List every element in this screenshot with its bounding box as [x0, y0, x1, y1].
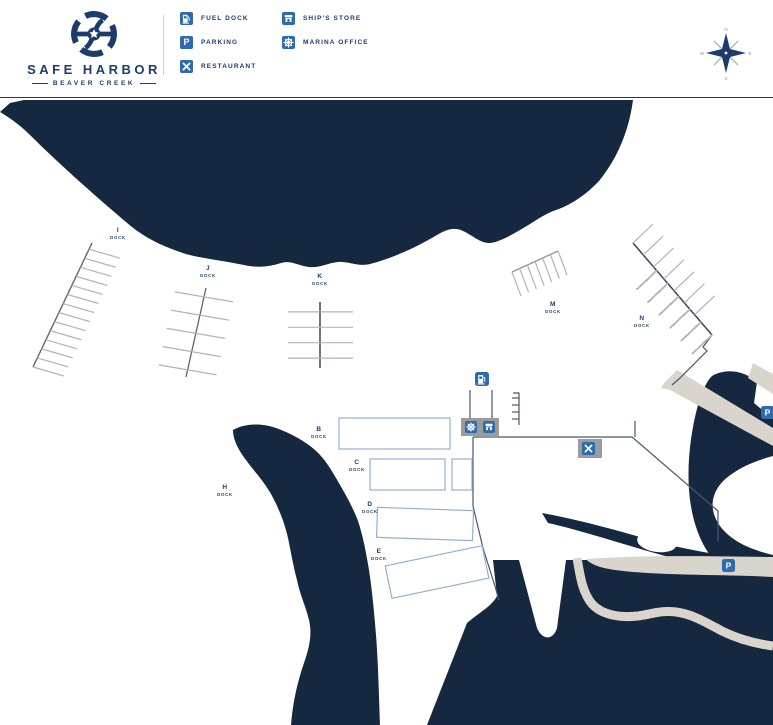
legend-item-ships-store: SHIP'S STORE: [282, 12, 369, 25]
parking-map-icon-south: P: [722, 559, 735, 572]
dock-m-sublabel: DOCK: [545, 309, 561, 314]
dock-d-structure: [377, 507, 474, 540]
marina-map-page: SAFE HARBOR BEAVER CREEK FUEL DOCK P PAR…: [0, 0, 773, 725]
dock-d-sublabel: DOCK: [362, 509, 378, 514]
dock-e-sublabel: DOCK: [371, 556, 387, 561]
legend-item-parking: P PARKING: [180, 36, 256, 49]
legend-item-fuel-dock: FUEL DOCK: [180, 12, 256, 25]
legend-label-marina-office: MARINA OFFICE: [303, 39, 369, 46]
dock-k-sublabel: DOCK: [312, 281, 328, 286]
dock-k-label: K: [317, 273, 322, 280]
parking-icon: P: [180, 36, 193, 49]
dock-n-sublabel: DOCK: [634, 323, 650, 328]
marina-map: P P B DOCK C DOCK D DOCK E DOCK H DOCK I…: [0, 97, 773, 725]
legend-label-restaurant: RESTAURANT: [201, 63, 256, 70]
fuel-dock-icon: [180, 12, 193, 25]
header-divider: [163, 15, 164, 75]
dock-h-label: H: [222, 484, 227, 491]
compass-rose-icon: N E S W: [693, 20, 759, 86]
compass-s: S: [724, 76, 727, 81]
dock-i-structure: [33, 243, 120, 376]
dock-b-sublabel: DOCK: [311, 434, 327, 439]
parking-letter: P: [183, 36, 189, 49]
legend-label-fuel-dock: FUEL DOCK: [201, 15, 249, 22]
dock-i-label: I: [117, 227, 119, 234]
compass-n: N: [724, 27, 727, 32]
legend-item-restaurant: RESTAURANT: [180, 60, 256, 73]
dock-n-label: N: [639, 315, 644, 322]
marina-office-icon: [282, 36, 295, 49]
ships-wheel-logo-icon: [68, 8, 120, 60]
dock-c-structure: [370, 459, 472, 490]
dock-m-label: M: [550, 301, 556, 308]
dock-m-structure: [512, 251, 567, 296]
brand-dash-left: [32, 83, 48, 84]
dock-d-label: D: [367, 501, 372, 508]
dock-h-sublabel: DOCK: [217, 492, 233, 497]
compass-e: E: [748, 51, 751, 56]
ships-store-icon: [282, 12, 295, 25]
restaurant-icon: [180, 60, 193, 73]
legend-label-parking: PARKING: [201, 39, 238, 46]
legend-item-marina-office: MARINA OFFICE: [282, 36, 369, 49]
brand-location-text: BEAVER CREEK: [53, 80, 135, 87]
legend-label-ships-store: SHIP'S STORE: [303, 15, 361, 22]
compass-w: W: [700, 51, 705, 56]
dock-n-structure: [633, 224, 715, 354]
dock-j-sublabel: DOCK: [200, 273, 216, 278]
dock-k-structure: [288, 302, 353, 368]
brand-dash-right: [140, 83, 156, 84]
water-upper-creek: [0, 100, 633, 267]
dock-e-structure: [385, 546, 489, 599]
dock-e-label: E: [377, 548, 382, 555]
dock-c-sublabel: DOCK: [349, 467, 365, 472]
dock-i-sublabel: DOCK: [110, 235, 126, 240]
brand-location: BEAVER CREEK: [18, 80, 170, 87]
parking-map-icon-east: P: [761, 406, 773, 419]
dock-c-label: C: [354, 459, 359, 466]
dock-b-label: B: [316, 426, 321, 433]
water-bottom-basin: [427, 560, 773, 725]
brand-name: SAFE HARBOR: [18, 62, 170, 77]
header: SAFE HARBOR BEAVER CREEK FUEL DOCK P PAR…: [0, 0, 773, 98]
brand-logo: SAFE HARBOR BEAVER CREEK: [18, 6, 170, 87]
dock-b-structure: [339, 418, 450, 449]
dock-j-structure: [159, 288, 233, 377]
dock-j-label: J: [206, 265, 210, 272]
